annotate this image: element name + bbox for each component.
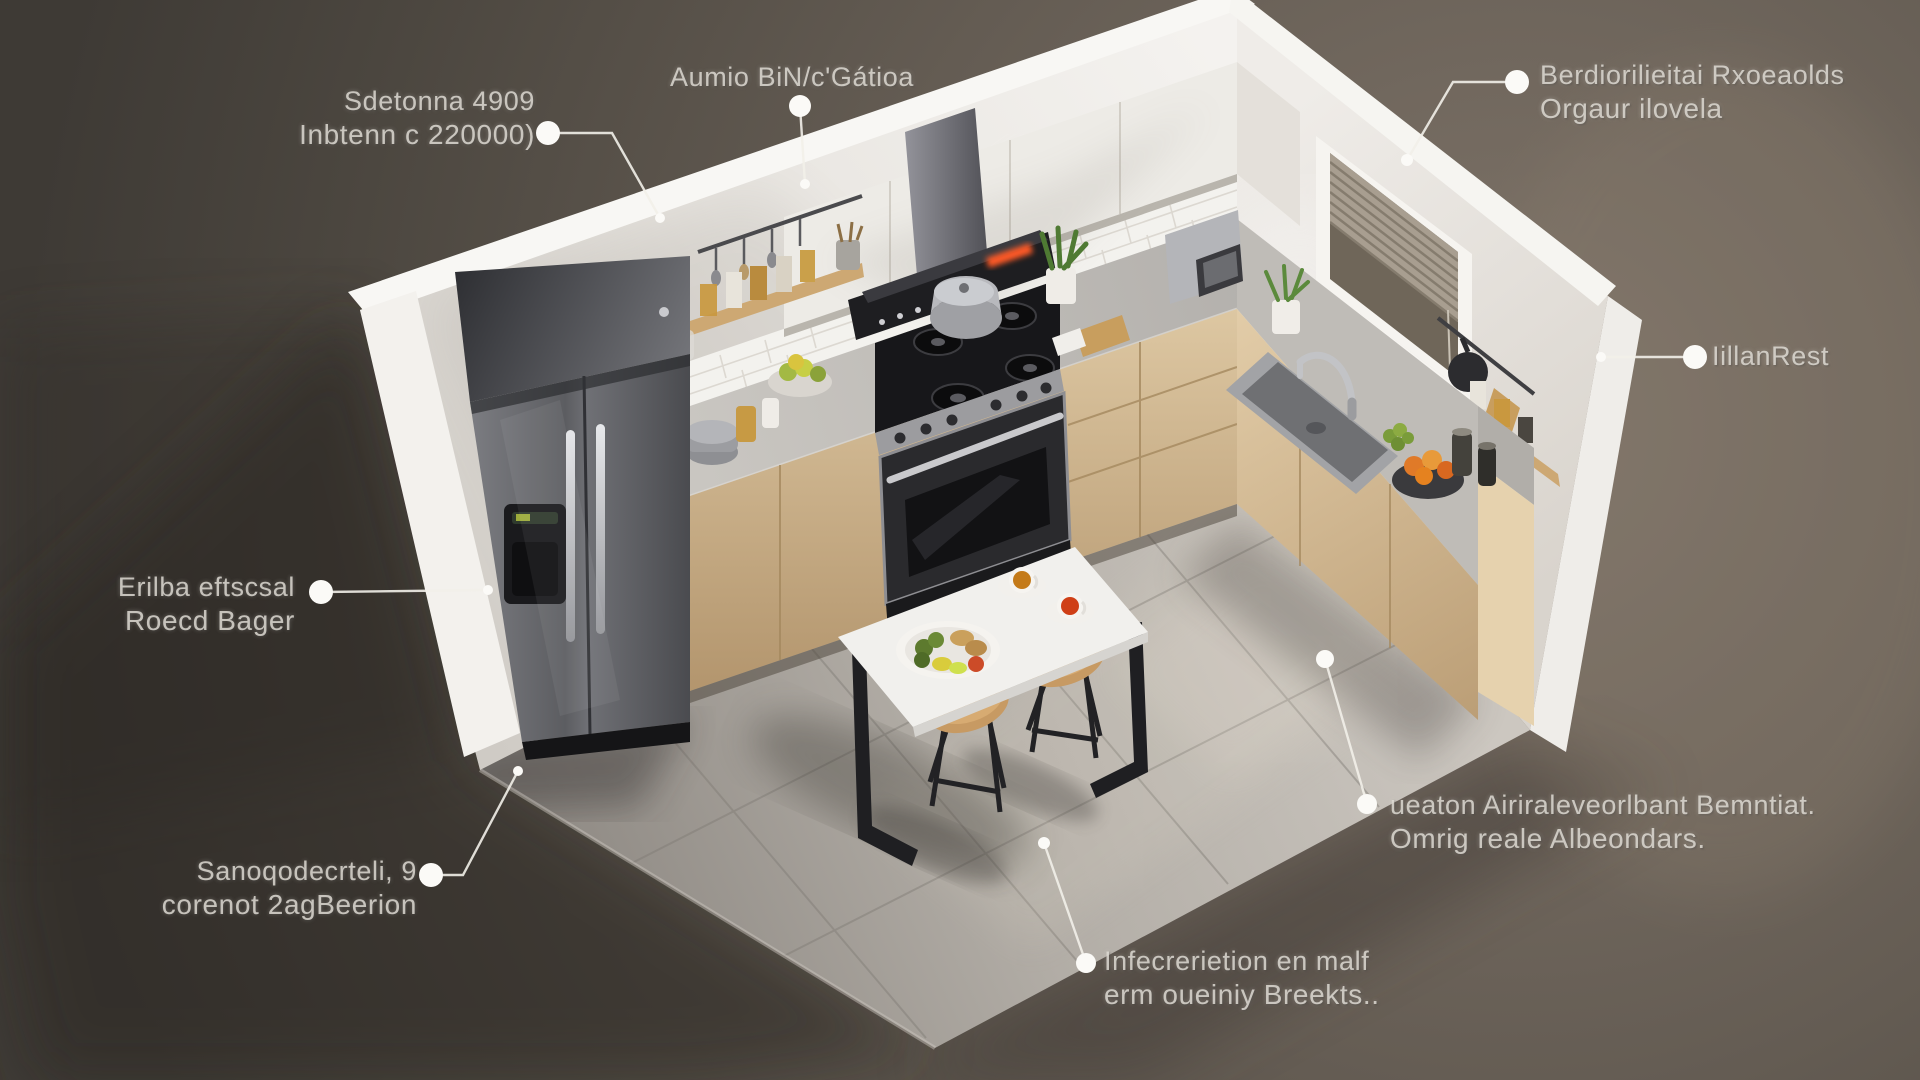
annotation-text: corenot 2agBeerion bbox=[162, 888, 417, 921]
annotation-text: Orgaur ilovela bbox=[1540, 92, 1845, 125]
annotation-label-base-cabinets: ueaton Airiraleveorlbant Bemntiat. Omrig… bbox=[1390, 790, 1816, 855]
annotation-label-wall-finish: IillanRest bbox=[1712, 341, 1829, 373]
hood-chimney bbox=[905, 108, 987, 276]
annotation-text: Berdiorilieitai Rxoeaolds bbox=[1540, 60, 1845, 92]
annotation-label-overhead-storage: Berdiorilieitai Rxoeaolds Orgaur ilovela bbox=[1540, 60, 1845, 125]
sink-drain bbox=[1306, 422, 1326, 434]
annotation-text: Sdetonna 4909 bbox=[299, 86, 535, 118]
annotation-text: Sanoqodecrteli, 9 bbox=[162, 856, 417, 888]
annotated-kitchen-render: { "annotations": [ {"id": "dimensions", … bbox=[0, 0, 1920, 1080]
annotation-label-flooring: Sanoqodecrteli, 9 corenot 2agBeerion bbox=[162, 856, 417, 921]
annotation-text: Erilba eftscsal bbox=[118, 572, 295, 604]
cooking-pot bbox=[930, 276, 1002, 339]
annotation-label-ventilation: Aumio BiN/c'Gátioa bbox=[632, 62, 952, 94]
annotation-label-refrigerator: Erilba eftscsal Roecd Bager bbox=[118, 572, 295, 637]
annotation-text: Roecd Bager bbox=[118, 604, 295, 637]
annotation-text: Omrig reale Albeondars. bbox=[1390, 822, 1816, 855]
annotation-text: Aumio BiN/c'Gátioa bbox=[632, 62, 952, 94]
annotation-text: Infecrerietion en malf bbox=[1104, 946, 1380, 978]
hanging-turner-icon bbox=[767, 252, 777, 268]
annotation-text: Inbtenn c 220000) bbox=[299, 118, 535, 151]
annotation-text: erm oueiniy Breekts.. bbox=[1104, 978, 1380, 1011]
utensil-crock bbox=[836, 240, 860, 270]
annotation-text: IillanRest bbox=[1712, 341, 1829, 373]
food-plate bbox=[896, 621, 1000, 679]
hanging-spoon-icon bbox=[711, 270, 721, 286]
gray-pot bbox=[686, 420, 738, 465]
annotation-label-dining-set: Infecrerietion en malf erm oueiniy Breek… bbox=[1104, 946, 1380, 1011]
counter-end-panel bbox=[1478, 463, 1534, 726]
fridge-logo-badge bbox=[659, 307, 669, 317]
annotation-text: ueaton Airiraleveorlbant Bemntiat. bbox=[1390, 790, 1816, 822]
annotation-label-dimensions: Sdetonna 4909 Inbtenn c 220000) bbox=[299, 86, 535, 151]
